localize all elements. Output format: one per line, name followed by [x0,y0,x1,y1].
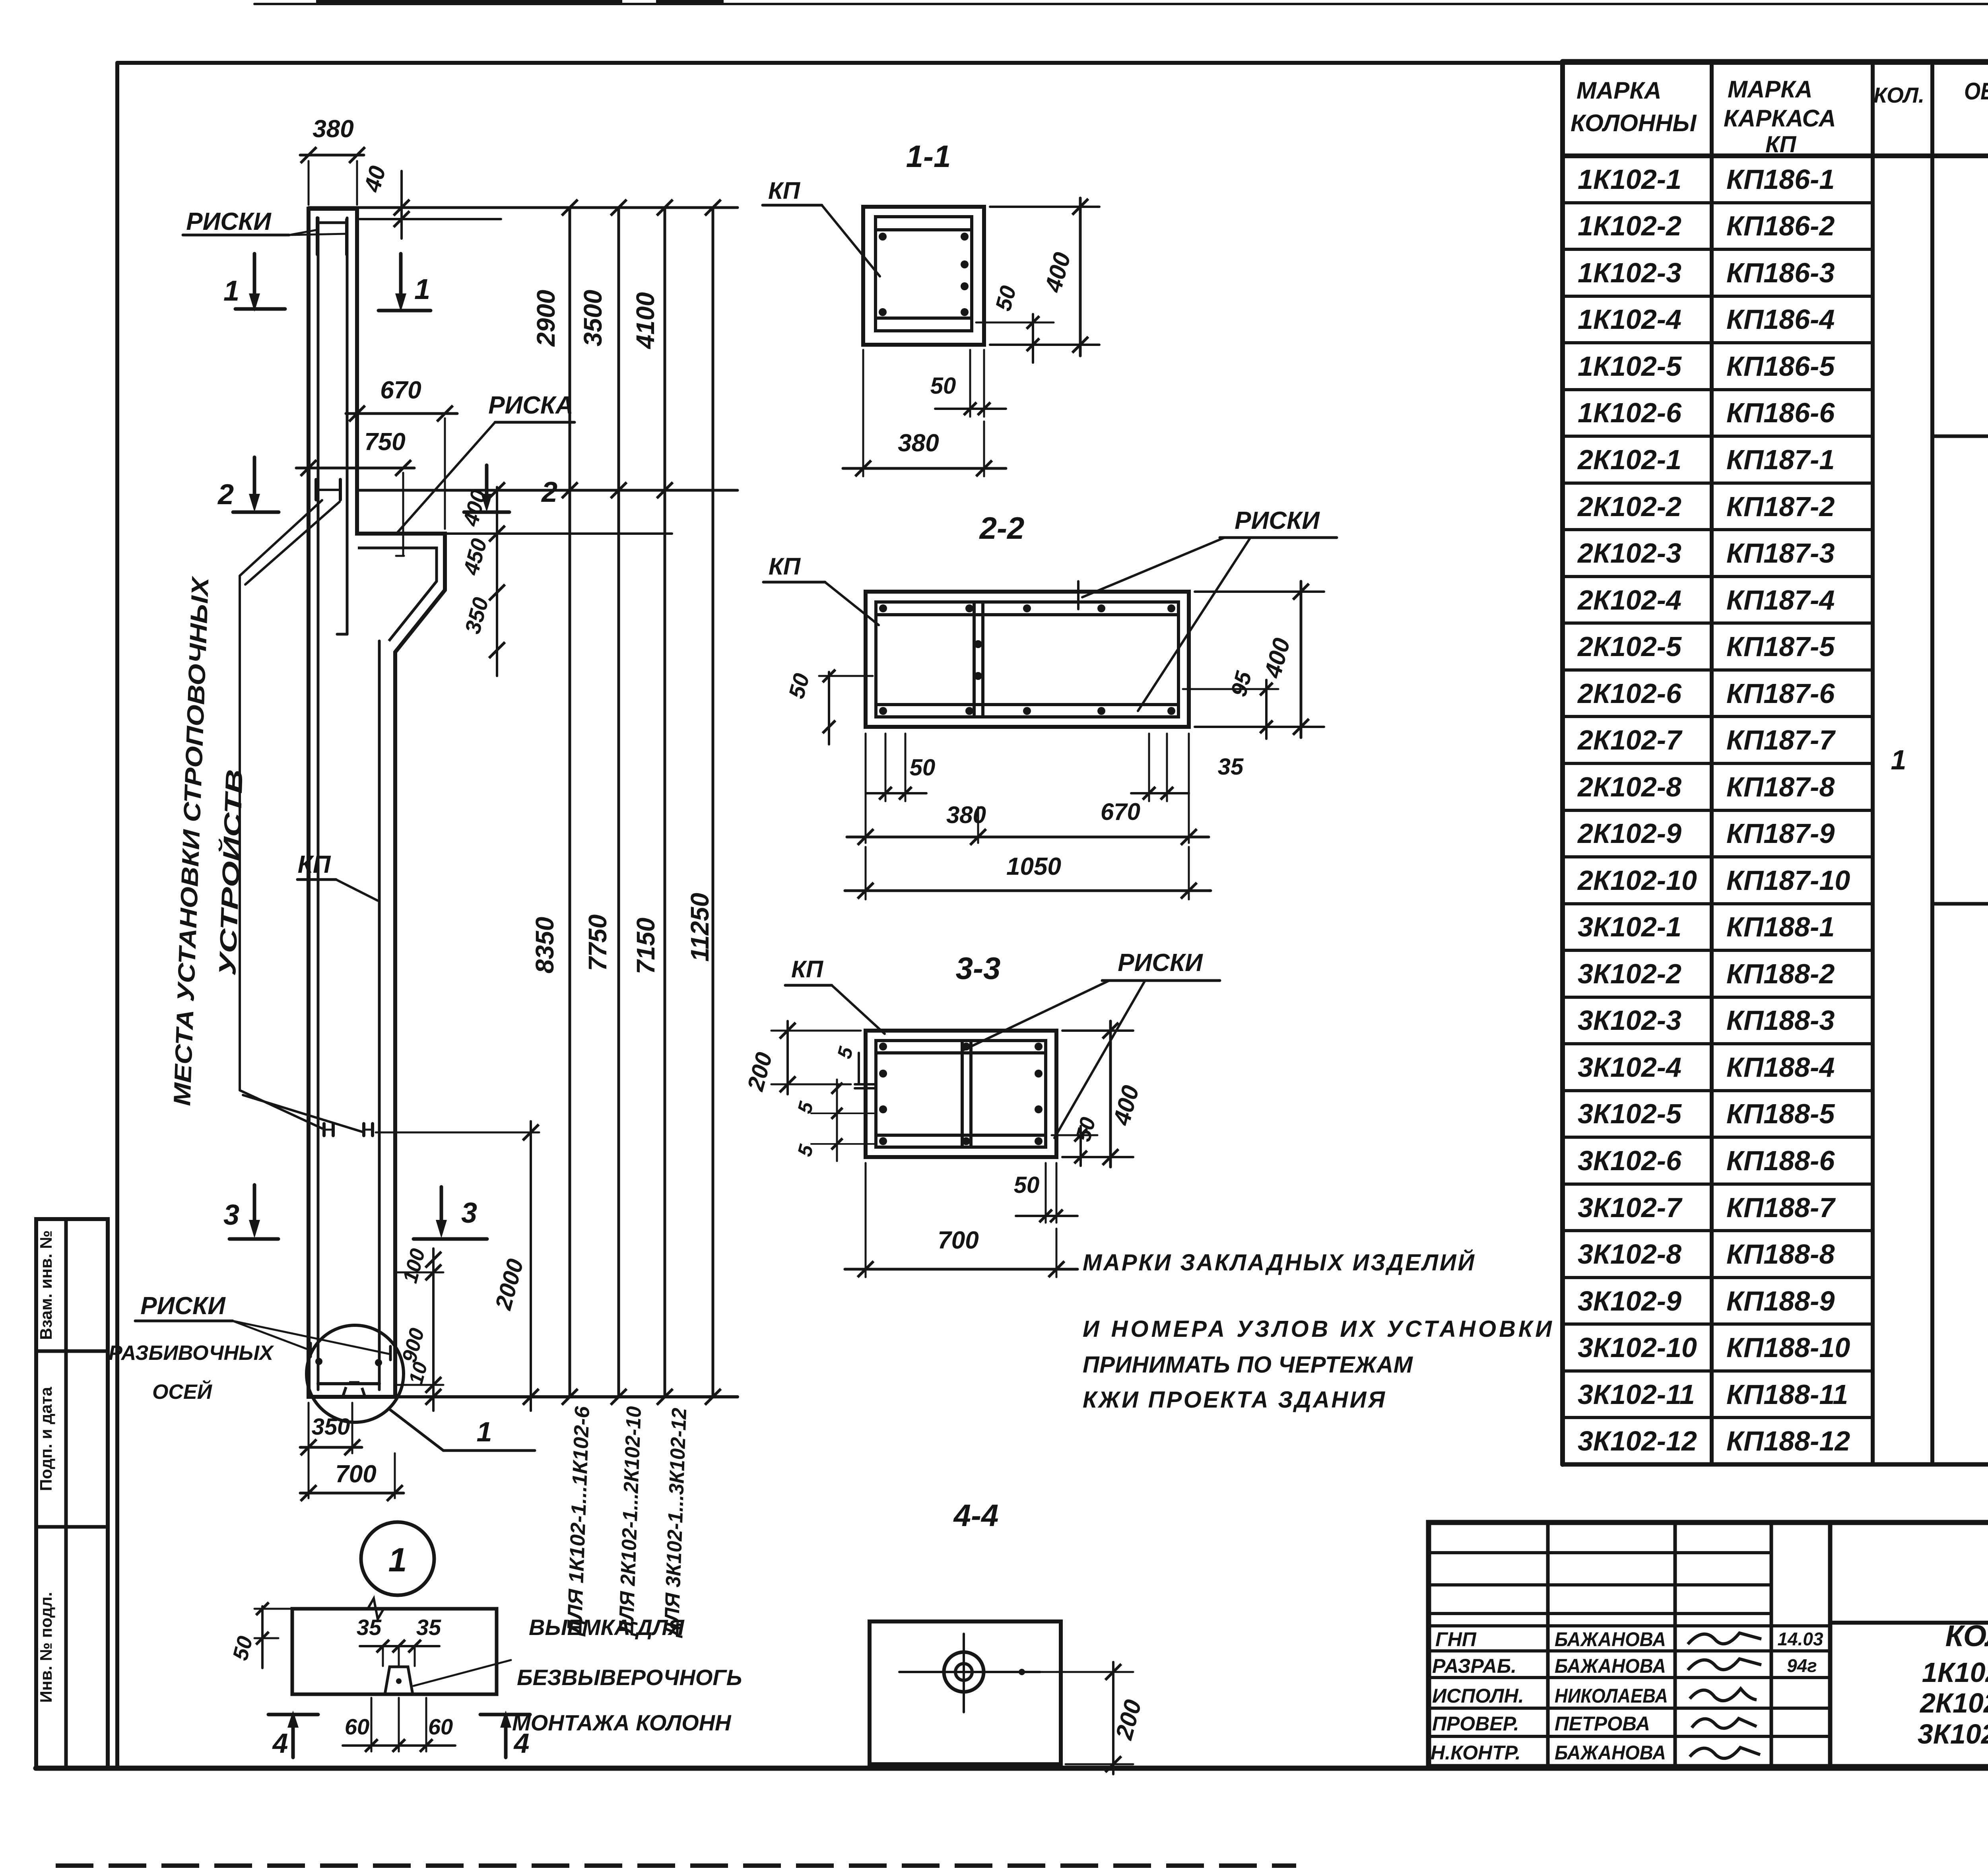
svg-text:1: 1 [477,1416,492,1447]
svg-text:КП187-6: КП187-6 [1726,678,1835,709]
svg-text:КЖИ ПРОЕКТА ЗДАНИЯ: КЖИ ПРОЕКТА ЗДАНИЯ [1083,1387,1386,1413]
svg-text:КП186-2: КП186-2 [1726,210,1835,241]
svg-text:700: 700 [938,1227,978,1254]
svg-text:11250: 11250 [685,893,714,961]
svg-text:3К102-10: 3К102-10 [1578,1332,1697,1363]
svg-text:60: 60 [428,1714,453,1739]
svg-text:8350: 8350 [530,917,559,973]
svg-text:2К102-6: 2К102-6 [1577,678,1682,709]
svg-text:2: 2 [541,476,557,508]
svg-text:50: 50 [930,373,956,399]
svg-text:КП187-9: КП187-9 [1726,818,1835,849]
svg-text:КП: КП [769,553,801,580]
svg-text:2К102-3: 2К102-3 [1577,538,1681,569]
svg-text:КП188-7: КП188-7 [1726,1192,1836,1223]
svg-text:КП187-2: КП187-2 [1726,491,1835,522]
svg-text:1К102-5: 1К102-5 [1578,351,1682,382]
svg-text:БАЖАНОВА: БАЖАНОВА [1555,1628,1666,1651]
svg-text:ГНП: ГНП [1435,1628,1477,1651]
svg-text:КП186-1: КП186-1 [1726,164,1835,195]
svg-text:ОСЕЙ: ОСЕЙ [152,1380,213,1404]
svg-text:КП186-3: КП186-3 [1726,257,1835,288]
svg-text:РИСКИ: РИСКИ [186,208,272,235]
svg-text:БАЖАНОВА: БАЖАНОВА [1555,1655,1666,1677]
svg-text:3: 3 [461,1197,477,1229]
svg-text:2К102-8: 2К102-8 [1577,771,1681,802]
svg-text:4-4: 4-4 [953,1498,999,1533]
svg-text:МАРКА: МАРКА [1576,77,1662,104]
svg-text:2К102-9: 2К102-9 [1577,818,1681,849]
svg-text:КП187-7: КП187-7 [1726,724,1836,755]
svg-text:БЕЗВЫВЕРОЧНОГЬ: БЕЗВЫВЕРОЧНОГЬ [517,1665,742,1690]
svg-text:3500: 3500 [579,290,607,346]
svg-text:2К102-1... 2К102-10;: 2К102-1... 2К102-10; [1919,1687,1988,1718]
svg-text:1: 1 [414,274,430,305]
svg-text:КП: КП [791,956,824,983]
svg-text:3К102-1 ... 3К102-12: 3К102-1 ... 3К102-12 [1918,1718,1988,1750]
svg-text:Подп. и дата: Подп. и дата [37,1386,55,1491]
svg-text:3К102-8: 3К102-8 [1578,1239,1681,1270]
svg-text:КП188-10: КП188-10 [1726,1332,1850,1363]
svg-text:КП188-9: КП188-9 [1726,1285,1835,1317]
svg-text:1К102-4: 1К102-4 [1578,304,1681,335]
svg-text:КОЛ.: КОЛ. [1873,83,1924,107]
svg-text:ПРОВЕР.: ПРОВЕР. [1432,1713,1519,1735]
svg-text:КП186-5: КП186-5 [1726,351,1835,382]
svg-text:КП187-8: КП187-8 [1726,771,1835,802]
svg-text:2К102-4: 2К102-4 [1577,584,1681,616]
svg-text:3: 3 [223,1199,239,1231]
svg-text:ПЕТРОВА: ПЕТРОВА [1555,1713,1650,1735]
svg-text:7150: 7150 [631,918,660,974]
svg-text:КАРКАСА: КАРКАСА [1724,105,1836,132]
svg-text:1: 1 [223,275,239,307]
svg-text:35: 35 [416,1615,441,1640]
svg-text:2К102-5: 2К102-5 [1577,631,1682,662]
svg-text:3-3: 3-3 [956,951,1001,986]
svg-text:РАЗРАБ.: РАЗРАБ. [1432,1655,1516,1677]
svg-text:1: 1 [388,1541,407,1579]
svg-text:КОЛОННЫ: КОЛОННЫ [1571,110,1697,136]
svg-text:МАРКА: МАРКА [1728,76,1813,103]
svg-text:670: 670 [380,377,421,404]
svg-text:1К102-1... 1К102-6 ;: 1К102-1... 1К102-6 ; [1922,1657,1988,1688]
svg-text:35: 35 [1218,754,1244,780]
svg-text:КП: КП [298,851,331,878]
svg-text:КП187-4: КП187-4 [1726,584,1835,616]
svg-text:2К102-2: 2К102-2 [1577,491,1681,522]
svg-text:1К102-3: 1К102-3 [1578,257,1681,288]
svg-text:КП188-8: КП188-8 [1726,1239,1835,1270]
svg-text:2К102-10: 2К102-10 [1577,865,1697,896]
svg-text:РАЗБИВОЧНЫХ: РАЗБИВОЧНЫХ [109,1342,274,1365]
svg-text:1: 1 [1891,744,1906,775]
svg-text:50: 50 [1014,1172,1040,1198]
svg-text:2900: 2900 [532,290,560,347]
svg-text:3К102-3: 3К102-3 [1578,1005,1681,1036]
svg-text:3К102-12: 3К102-12 [1578,1425,1697,1456]
svg-text:3К102-5: 3К102-5 [1578,1098,1682,1129]
svg-text:3К102-11: 3К102-11 [1578,1379,1695,1410]
svg-text:3К102-9: 3К102-9 [1578,1285,1681,1317]
svg-text:2: 2 [217,479,234,511]
svg-text:КОЛОННА: КОЛОННА [1945,1619,1988,1652]
svg-text:50: 50 [910,755,936,781]
svg-text:1К102-6: 1К102-6 [1578,397,1682,428]
svg-text:1К102-1: 1К102-1 [1578,164,1681,195]
svg-text:КП188-2: КП188-2 [1726,958,1835,989]
svg-text:380: 380 [313,115,353,143]
svg-text:РИСКИ: РИСКИ [140,1292,226,1320]
svg-text:НИКОЛАЕВА: НИКОЛАЕВА [1555,1685,1668,1707]
svg-text:2-2: 2-2 [979,511,1025,546]
svg-text:1-1: 1-1 [906,139,951,174]
svg-text:ОБОЗНАЧЕНИЕ ДОКУМЕНТА: ОБОЗНАЧЕНИЕ ДОКУМЕНТА [1964,78,1988,105]
svg-text:4: 4 [272,1728,288,1759]
svg-text:КП187-10: КП187-10 [1726,865,1850,896]
svg-text:1К102-2: 1К102-2 [1578,210,1681,241]
svg-text:2К102-7: 2К102-7 [1577,724,1683,755]
svg-text:700: 700 [335,1460,376,1488]
svg-text:БАЖАНОВА: БАЖАНОВА [1555,1742,1666,1764]
svg-text:380: 380 [898,429,939,457]
svg-text:1050: 1050 [1006,853,1061,880]
svg-text:14.03: 14.03 [1777,1629,1823,1649]
svg-text:КП187-3: КП187-3 [1726,538,1835,569]
svg-text:3К102-2: 3К102-2 [1578,958,1681,989]
svg-text:КП186-6: КП186-6 [1726,397,1835,428]
svg-text:35: 35 [357,1615,382,1640]
svg-text:КП188-6: КП188-6 [1726,1145,1835,1176]
svg-text:КП187-1: КП187-1 [1726,444,1835,475]
svg-text:КП188-11: КП188-11 [1726,1379,1848,1410]
svg-text:РИСКИ: РИСКИ [1118,949,1203,977]
svg-text:РИСКИ: РИСКИ [1235,507,1320,534]
svg-text:Взам. инв. №: Взам. инв. № [37,1230,55,1340]
svg-text:3К102-1: 3К102-1 [1578,911,1681,942]
svg-text:КП188-1: КП188-1 [1726,911,1835,942]
svg-text:КП186-4: КП186-4 [1726,304,1835,335]
svg-text:КП: КП [1765,132,1797,157]
svg-text:РИСКА: РИСКА [488,392,573,419]
svg-text:3К102-4: 3К102-4 [1578,1052,1681,1083]
svg-text:ПРИНИМАТЬ ПО ЧЕРТЕЖАМ: ПРИНИМАТЬ ПО ЧЕРТЕЖАМ [1083,1352,1413,1378]
svg-text:МАРКИ ЗАКЛАДНЫХ ИЗДЕЛИЙ: МАРКИ ЗАКЛАДНЫХ ИЗДЕЛИЙ [1083,1249,1475,1276]
svg-text:94г: 94г [1787,1655,1817,1676]
svg-text:КП188-5: КП188-5 [1726,1098,1835,1129]
svg-text:ИСПОЛН.: ИСПОЛН. [1432,1685,1524,1707]
svg-text:7750: 7750 [583,915,612,971]
svg-text:670: 670 [1101,798,1140,825]
svg-text:2К102-1: 2К102-1 [1577,444,1681,475]
svg-text:И НОМЕРА УЗЛОВ ИХ УСТАНОВКИ: И НОМЕРА УЗЛОВ ИХ УСТАНОВКИ [1083,1316,1552,1342]
svg-text:Н.КОНТР.: Н.КОНТР. [1431,1742,1521,1764]
svg-text:3К102-6: 3К102-6 [1578,1145,1682,1176]
svg-text:380: 380 [946,802,986,828]
svg-text:КП188-12: КП188-12 [1726,1425,1850,1456]
svg-text:КП188-3: КП188-3 [1726,1005,1835,1036]
svg-text:КП188-4: КП188-4 [1726,1052,1835,1083]
svg-text:Инв. № подл.: Инв. № подл. [37,1592,55,1703]
svg-text:60: 60 [345,1714,369,1739]
svg-text:МОНТАЖА КОЛОНН: МОНТАЖА КОЛОНН [512,1710,732,1735]
svg-text:750: 750 [364,428,405,456]
svg-text:4100: 4100 [631,292,660,350]
svg-text:КП187-5: КП187-5 [1726,631,1835,662]
svg-text:350: 350 [312,1414,350,1440]
svg-text:КП: КП [768,177,801,204]
svg-text:3К102-7: 3К102-7 [1578,1192,1683,1223]
